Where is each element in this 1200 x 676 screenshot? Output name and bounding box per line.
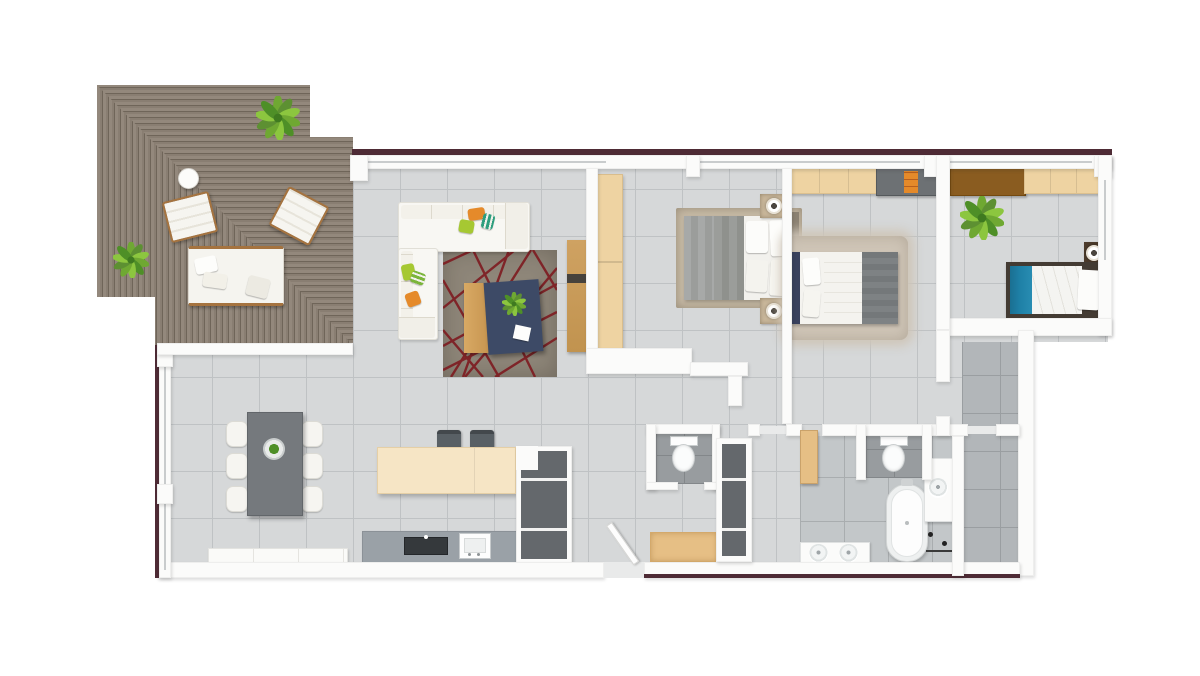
basin-single [928, 478, 948, 498]
dresser-orange-drawers [904, 171, 918, 193]
outside-mask [1032, 342, 1200, 576]
floor-plan-canvas [0, 0, 1200, 676]
bed-pillow [802, 289, 821, 317]
bed-kids [1006, 262, 1106, 318]
bed-bedroom2 [790, 252, 898, 324]
window-glass-line [1104, 180, 1106, 260]
dining-table [247, 412, 303, 516]
deck-plant-small-icon [113, 242, 149, 278]
wall-master-bottom-2 [690, 362, 748, 376]
closet-kids [1024, 166, 1104, 194]
wall-living-master [586, 168, 598, 354]
dining-chair [301, 486, 323, 512]
cabinet-white-notch [516, 446, 538, 470]
wall-bath-laundry [952, 436, 964, 576]
hook-icon [928, 532, 933, 537]
coffee-table-navy-part [484, 279, 544, 355]
dining-centerpiece [263, 438, 285, 460]
bed-pillow [802, 257, 821, 285]
wall-pillar [350, 155, 368, 181]
daybed-blanket [245, 275, 271, 300]
cabinet-shelf-line [521, 478, 567, 481]
wall-bedroom2-kids [936, 155, 950, 330]
cooktop-knob [424, 535, 428, 539]
outer-wall-right-lower [1018, 330, 1034, 576]
closet-bedroom2 [790, 166, 878, 194]
wall-pillar [686, 155, 700, 177]
wall-wc-left [646, 424, 656, 490]
wall-niche-left [856, 424, 866, 480]
duvet-fold-lines [824, 254, 862, 322]
deck-dining-divider [157, 343, 353, 355]
storage-shelf-line [722, 478, 746, 481]
wall-master-bedroom2 [782, 168, 792, 424]
cabinet-shelf-line [521, 528, 567, 531]
wall-pillar [157, 484, 173, 504]
tall-cabinet-column [516, 446, 572, 564]
dining-chair [226, 486, 248, 512]
hook-icon [942, 541, 947, 546]
daybed-pillow [202, 271, 228, 289]
desk-kids [950, 168, 1026, 196]
wardrobe-master [597, 174, 623, 352]
bathroom-door-leaf[interactable] [800, 430, 818, 484]
dining-chair [226, 421, 248, 447]
wall-wc-bottom-left [646, 482, 678, 490]
sofa-armrest-right [505, 203, 528, 249]
entry-door-gap [604, 562, 644, 578]
wall-wc-top [646, 424, 720, 434]
daybed [188, 246, 284, 306]
basin-left [809, 544, 828, 563]
window-glass-line [164, 352, 166, 570]
duvet-gray-1 [684, 216, 714, 300]
wc-toilet-bowl [672, 444, 695, 472]
floor-laundry [962, 342, 1020, 566]
bed-pillow [746, 221, 768, 253]
wall-bathroom-top-2 [996, 424, 1020, 436]
wall-master-bottom [586, 348, 692, 374]
door-sill-laundry [968, 426, 996, 434]
bed-master [684, 216, 796, 300]
kitchen-island [377, 447, 516, 494]
sofa-pillow-lime [458, 219, 475, 234]
wall-stub-hall [728, 376, 742, 406]
coffee-table-plant-icon [502, 292, 526, 316]
storage-column-dark [722, 444, 746, 556]
blanket-teal [1010, 266, 1034, 314]
door-sill-bedroom2 [760, 426, 786, 434]
kids-plant-icon [960, 196, 1004, 240]
bed-pillow [745, 259, 769, 292]
table-lamp-icon [766, 198, 782, 214]
window-glass-line [938, 161, 1092, 163]
sink-basin [464, 538, 486, 553]
cooktop [404, 537, 448, 555]
outer-wall-bottom [157, 562, 604, 578]
bathtub [886, 484, 928, 562]
window-glass-line [362, 161, 606, 163]
kitchen-sink [459, 533, 491, 559]
duvet-gray-2 [714, 216, 744, 300]
table-lamp-icon [766, 303, 782, 319]
deck-round-table [178, 168, 199, 189]
window-glass-line [700, 161, 920, 163]
bath-toilet-bowl [882, 444, 905, 472]
wall-bedroom2-laundry [936, 330, 950, 382]
blanket-gray [862, 252, 898, 324]
bathtub-drain-icon [905, 521, 909, 525]
sink-faucet-icon [468, 553, 471, 556]
coffee-table-paper [513, 324, 532, 341]
bathtub-tap-icon [901, 479, 913, 486]
sofa-armrest-bottom [399, 317, 435, 338]
deck-plant-large-icon [256, 96, 300, 140]
dining-chair [226, 453, 248, 479]
sink-faucet-icon [477, 553, 480, 556]
duvet-white [1032, 266, 1082, 314]
storage-shelf-line [722, 528, 746, 531]
towel-rail-icon [926, 550, 952, 552]
basin-right [839, 544, 858, 563]
dining-chair [301, 453, 323, 479]
wall-niche-right [922, 424, 932, 480]
dining-chair [301, 421, 323, 447]
wall-bedroom2-laundry-jamb [936, 416, 950, 436]
wall-bedroom2-door-jamb [748, 424, 760, 436]
hall-bench-tan [650, 532, 718, 562]
